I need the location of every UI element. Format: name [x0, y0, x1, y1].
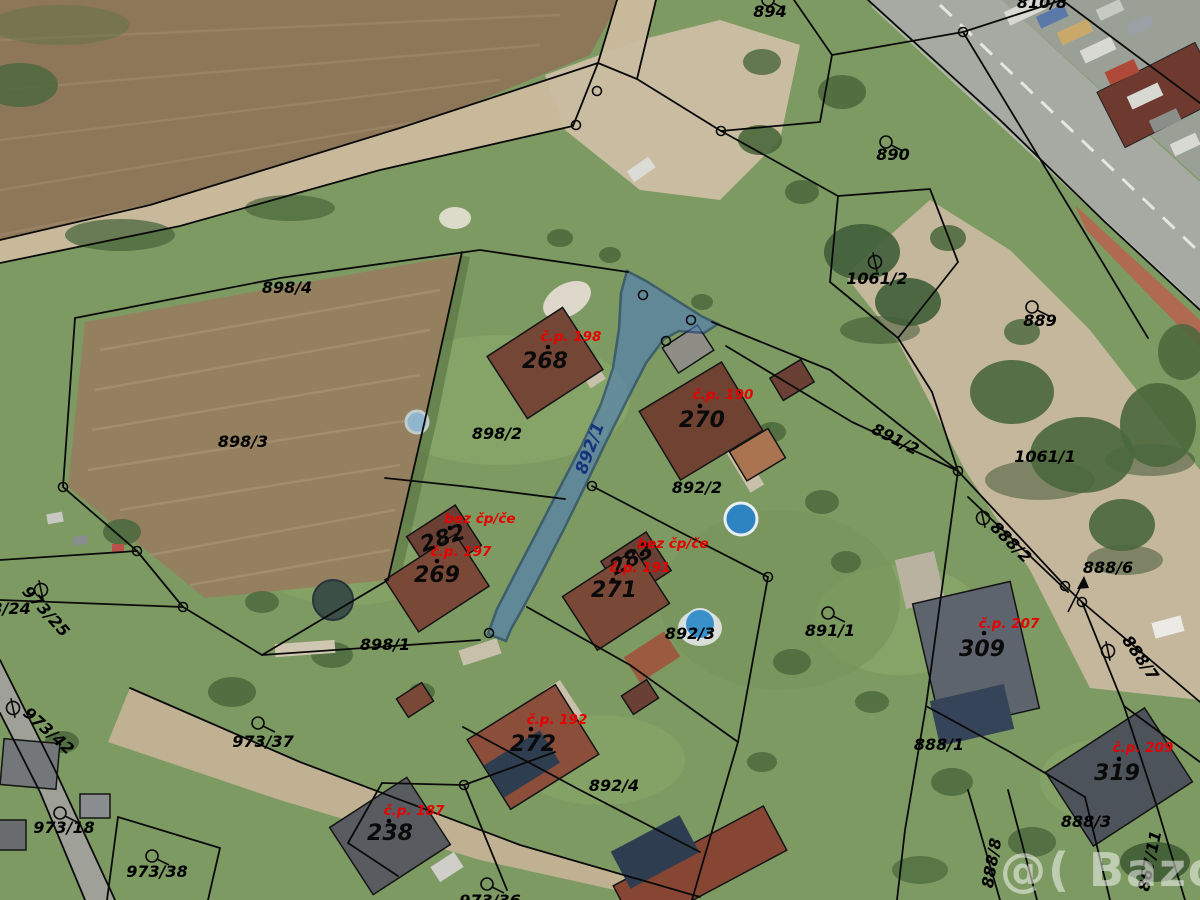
parcel-label-888-1: 888/1 — [914, 735, 964, 754]
parcel-label-973-38: 973/38 — [126, 862, 188, 881]
parcel-label-889: 889 — [1023, 311, 1056, 330]
parcel-label-892-3: 892/3 — [665, 624, 715, 643]
house-number-cp-192: č.p. 192 — [527, 712, 588, 728]
building-number-238: 238 — [367, 821, 413, 846]
parcel-label-810-8: 810/8 — [1017, 0, 1067, 12]
parcel-label-973-18: 973/18 — [33, 818, 95, 837]
parcel-label-888-3: 888/3 — [1061, 812, 1111, 831]
house-number-cp-191: č.p. 191 — [610, 560, 671, 576]
trampoline — [313, 580, 353, 620]
parcel-label-973-37: 973/37 — [232, 732, 294, 751]
house-number-bez-cpce-1: bez čp/če — [444, 511, 515, 527]
building-number-271: 271 — [591, 578, 637, 603]
house-number-cp-190: č.p. 190 — [693, 387, 754, 403]
parcel-label-898-3: 898/3 — [218, 432, 268, 451]
watermark: @( Bazos.cz — [1000, 843, 1200, 897]
building-number-268: 268 — [522, 349, 568, 374]
house-number-cp-198: č.p. 198 — [541, 329, 602, 345]
house-number-cp-197: č.p. 197 — [431, 544, 492, 560]
parcel-label-898-2: 898/2 — [472, 424, 522, 443]
parcel-label-1061-1: 1061/1 — [1014, 447, 1076, 466]
house-roof-small-1 — [0, 739, 60, 790]
parcel-label-973-36: 973/36 — [459, 891, 521, 900]
blossom-tree — [439, 207, 471, 229]
parcel-label-898-1: 898/1 — [360, 635, 410, 654]
house-number-bez-cpce-2: bez čp/če — [637, 536, 708, 552]
parcel-label-891-1: 891/1 — [805, 621, 855, 640]
house-number-cp-209: č.p. 209 — [1113, 740, 1174, 756]
building-number-272: 272 — [510, 732, 556, 757]
parcel-label-890: 890 — [876, 145, 909, 164]
parcel-label-894: 894 — [753, 2, 786, 21]
parcel-label-1061-2: 1061/2 — [846, 269, 908, 288]
parcel-label-892-2: 892/2 — [672, 478, 722, 497]
parcel-label-888-6: 888/6 — [1083, 558, 1133, 577]
map-canvas: 894 890 1061/2 889 810/8 898/4 898/3 898… — [0, 0, 1200, 900]
house-number-cp-207: č.p. 207 — [979, 616, 1040, 632]
building-number-319: 319 — [1094, 761, 1140, 786]
parcel-label-898-4: 898/4 — [262, 278, 312, 297]
building-number-270: 270 — [679, 408, 725, 433]
house-roof-small-2 — [80, 794, 110, 818]
cadastral-aerial-map: 894 890 1061/2 889 810/8 898/4 898/3 898… — [0, 0, 1200, 900]
building-number-309: 309 — [959, 637, 1005, 662]
pool-round-1 — [725, 503, 757, 535]
building-number-269: 269 — [414, 563, 460, 588]
house-roof-small-3 — [0, 820, 26, 850]
house-number-cp-187: č.p. 187 — [384, 803, 445, 819]
parcel-label-892-4: 892/4 — [589, 776, 639, 795]
